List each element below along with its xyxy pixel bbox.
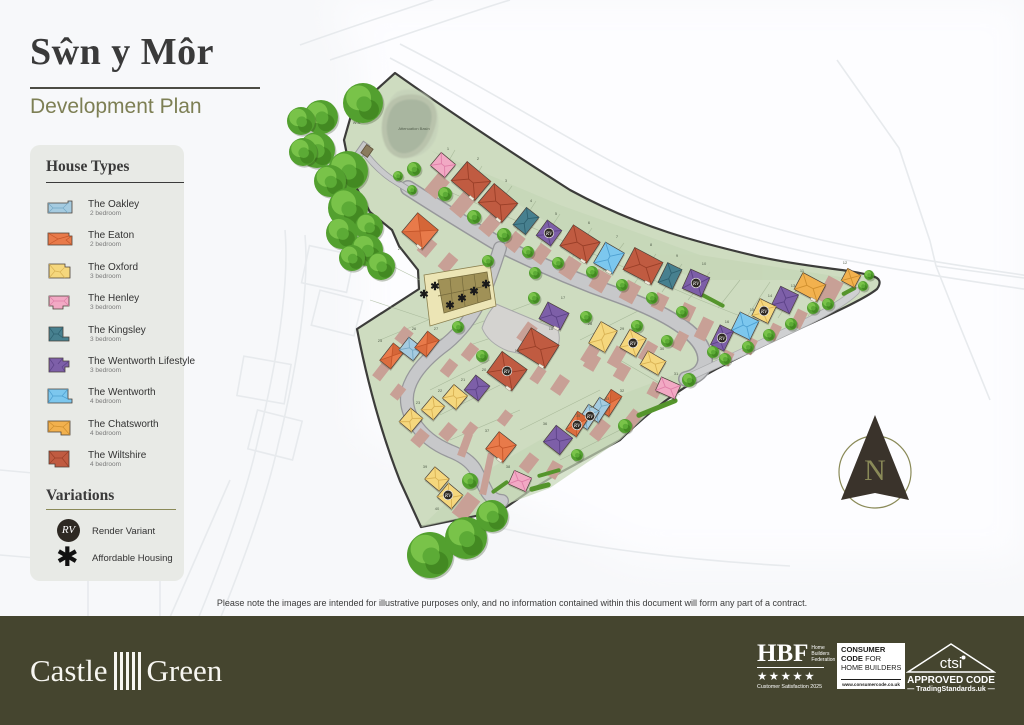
svg-text:RV: RV <box>692 281 700 287</box>
svg-text:27: 27 <box>434 326 439 331</box>
svg-text:10: 10 <box>702 261 707 266</box>
svg-text:13: 13 <box>791 283 796 288</box>
svg-text:APPROVED CODE: APPROVED CODE <box>907 675 995 686</box>
svg-text:RV: RV <box>573 423 581 429</box>
svg-text:39: 39 <box>423 464 428 469</box>
svg-text:25: 25 <box>378 338 383 343</box>
svg-text:36: 36 <box>543 421 548 426</box>
svg-text:22: 22 <box>438 388 443 393</box>
svg-text:37: 37 <box>485 428 490 433</box>
svg-text:✱: ✱ <box>419 289 428 301</box>
svg-text:RV: RV <box>586 414 594 420</box>
svg-text:32: 32 <box>620 388 625 393</box>
svg-text:20: 20 <box>482 367 487 372</box>
svg-text:19: 19 <box>515 348 520 353</box>
svg-text:31: 31 <box>674 371 679 376</box>
svg-text:RV: RV <box>545 231 553 237</box>
svg-text:26: 26 <box>412 326 417 331</box>
svg-text:14: 14 <box>768 293 773 298</box>
svg-text:✱: ✱ <box>457 293 466 305</box>
svg-text:29: 29 <box>620 326 625 331</box>
svg-text:12: 12 <box>843 260 848 265</box>
svg-text:RV: RV <box>760 309 768 315</box>
svg-text:RV: RV <box>629 341 637 347</box>
svg-text:15: 15 <box>750 307 755 312</box>
svg-text:21: 21 <box>461 377 466 382</box>
svg-text:— TradingStandards.uk —: — TradingStandards.uk — <box>907 686 995 693</box>
svg-text:✱: ✱ <box>430 281 439 293</box>
svg-text:ctsi: ctsi <box>940 655 963 672</box>
svg-text:16: 16 <box>725 319 730 324</box>
svg-text:N: N <box>864 454 886 487</box>
svg-text:✱: ✱ <box>481 279 490 291</box>
svg-text:✱: ✱ <box>445 300 454 312</box>
svg-text:24: 24 <box>398 246 403 251</box>
svg-text:18: 18 <box>549 326 554 331</box>
svg-text:35: 35 <box>576 413 581 418</box>
svg-text:RV: RV <box>718 336 726 342</box>
svg-text:Attenuation Basin: Attenuation Basin <box>398 126 429 131</box>
svg-text:38: 38 <box>506 464 511 469</box>
svg-text:RV: RV <box>444 493 452 499</box>
svg-text:✱: ✱ <box>469 286 478 298</box>
svg-text:23: 23 <box>416 400 421 405</box>
svg-text:RV: RV <box>503 369 511 375</box>
svg-text:17: 17 <box>561 295 566 300</box>
svg-text:33: 33 <box>605 396 610 401</box>
svg-text:34: 34 <box>590 404 595 409</box>
svg-text:40: 40 <box>435 506 440 511</box>
